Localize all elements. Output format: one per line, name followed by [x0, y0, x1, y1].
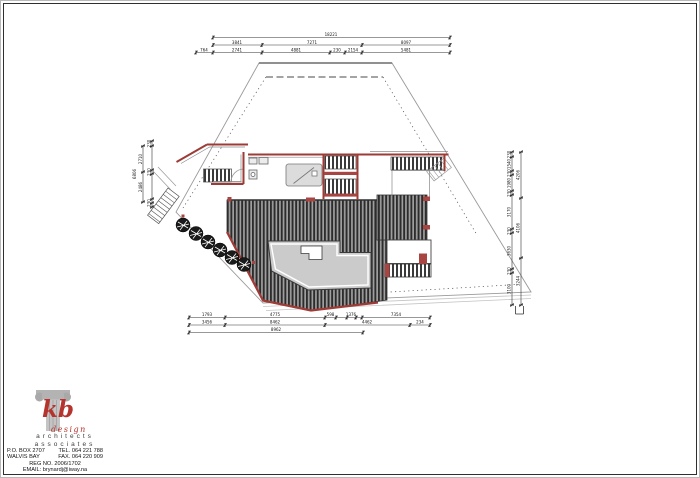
city-text: WALVIS BAY [7, 454, 40, 460]
drawing-sheet: 18221 3841 7271 8097 764 2741 4881 230 2… [0, 0, 700, 478]
profession-text: architects [6, 433, 124, 440]
fax-text: FAX. 064 220 909 [58, 454, 103, 460]
email-text: EMAIL: brynardj@iway.na [7, 467, 103, 473]
title-block: kb design architects associates P.O. BOX… [6, 386, 128, 474]
association-text: associates [6, 441, 124, 448]
brand-text: kb [42, 398, 74, 421]
contact-block: P.O. BOX 2707 TEL. 064 221 788 WALVIS BA… [7, 448, 103, 473]
